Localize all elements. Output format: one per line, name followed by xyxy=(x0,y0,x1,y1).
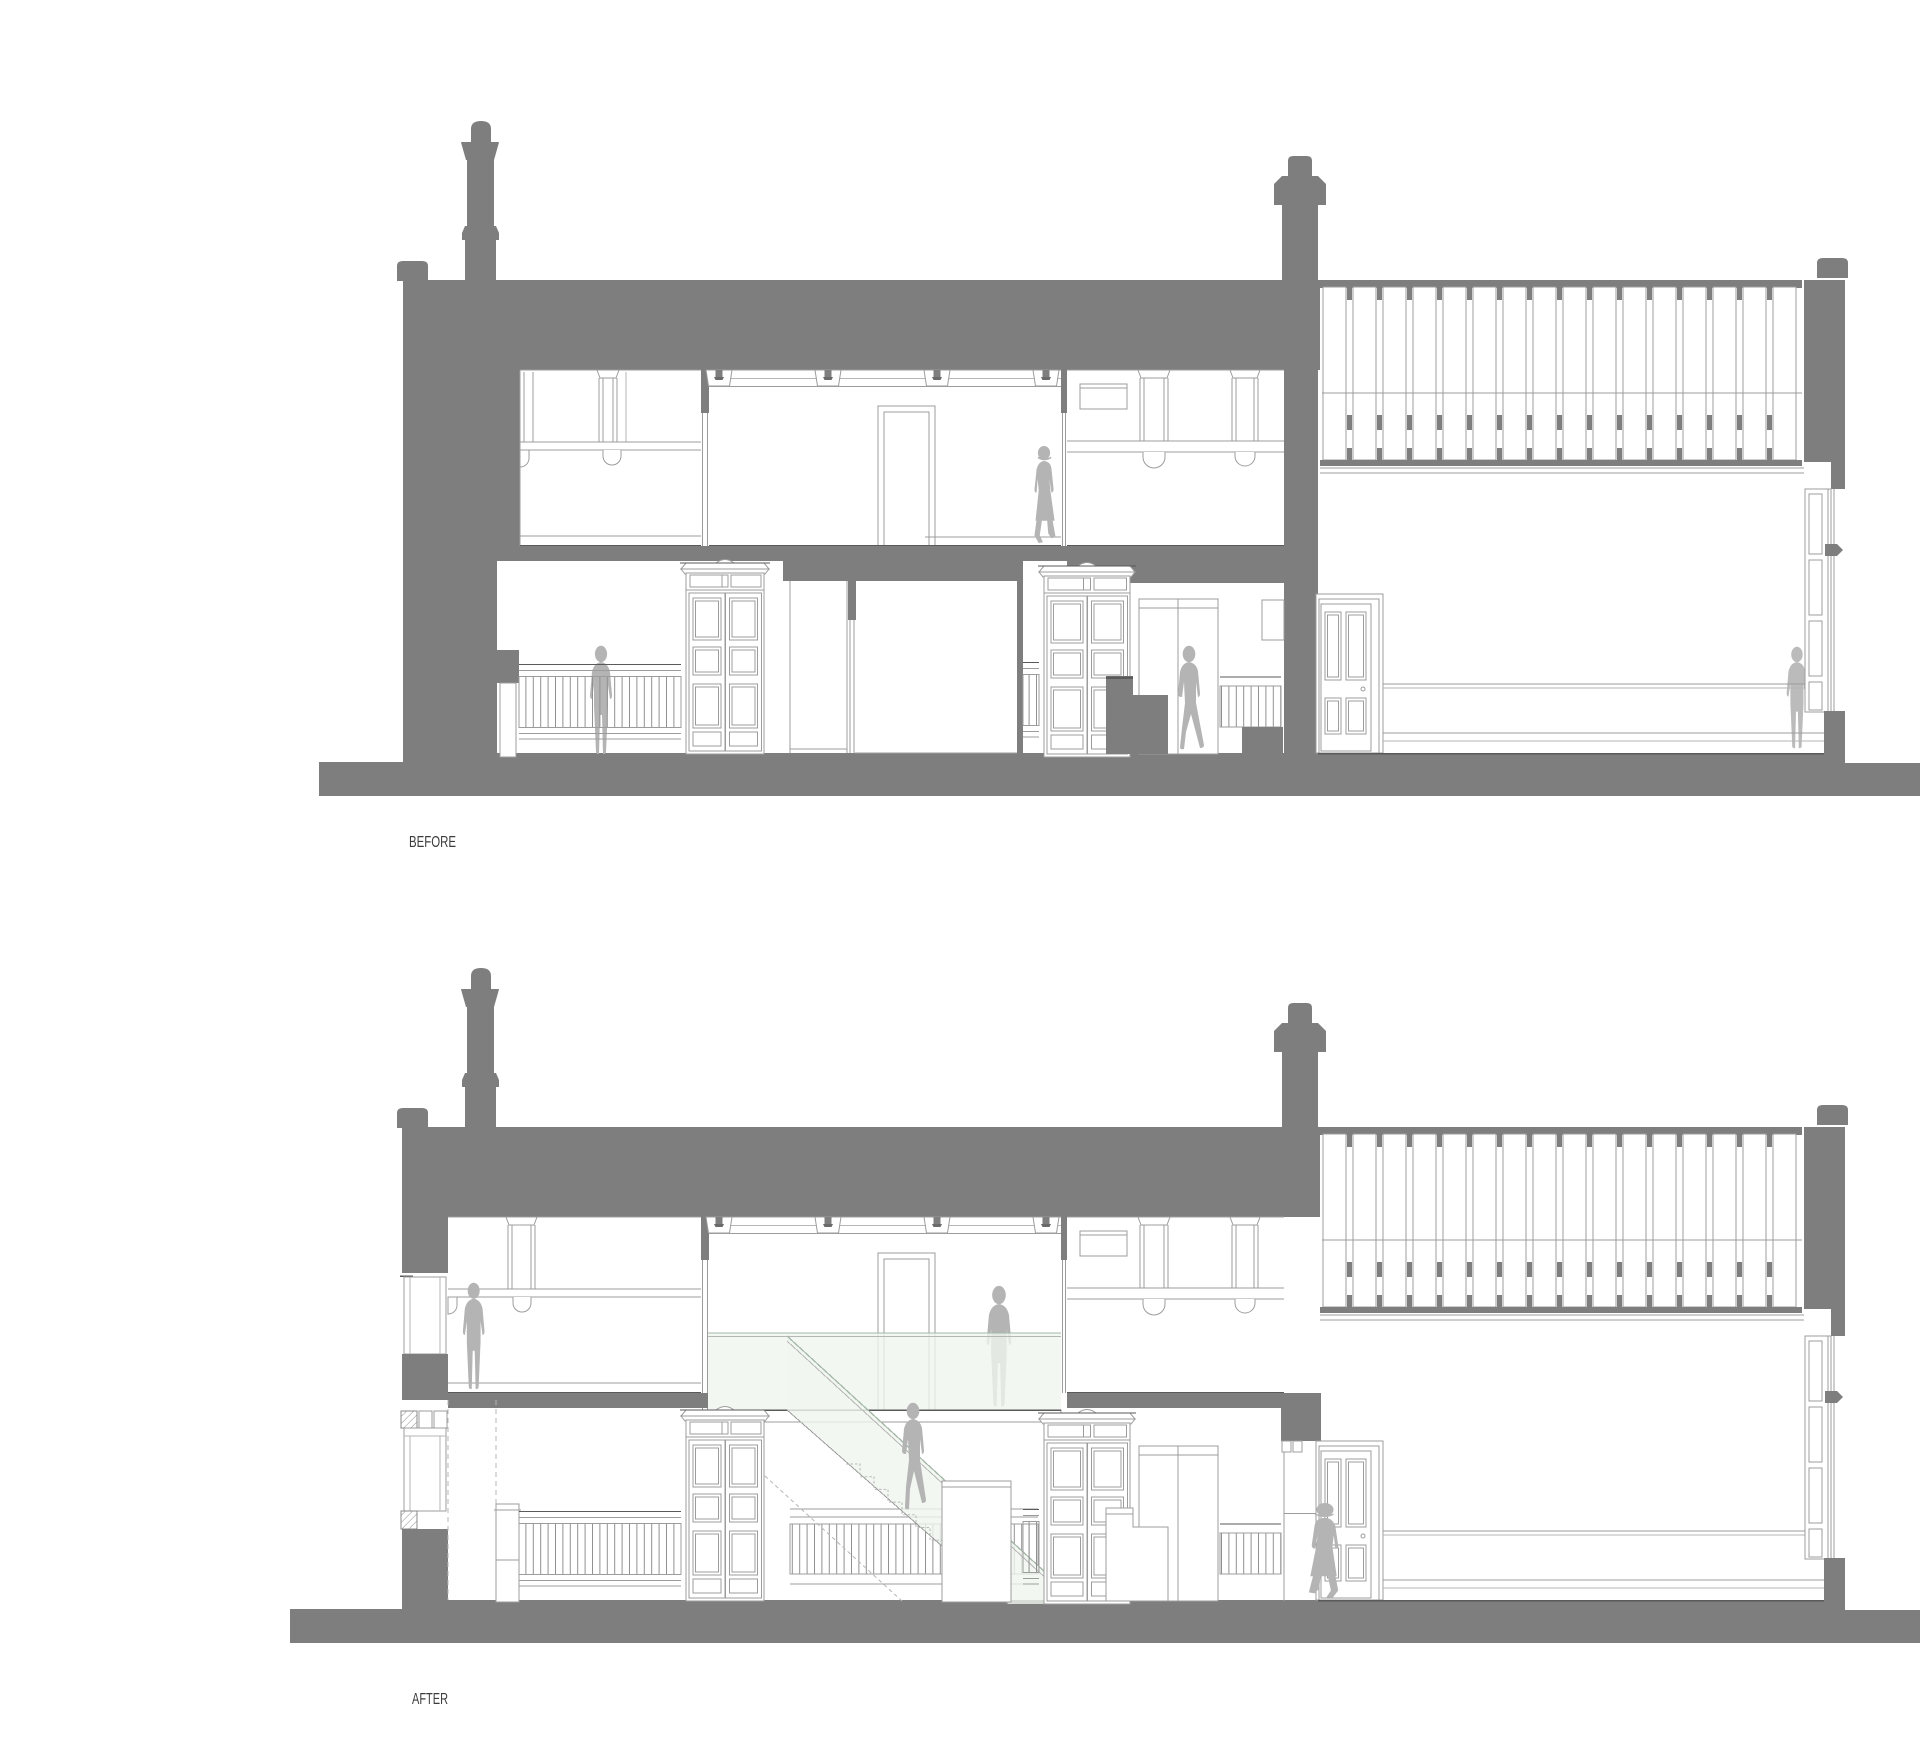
svg-text:BEFORE: BEFORE xyxy=(409,834,456,851)
svg-text:AFTER: AFTER xyxy=(412,1691,448,1708)
